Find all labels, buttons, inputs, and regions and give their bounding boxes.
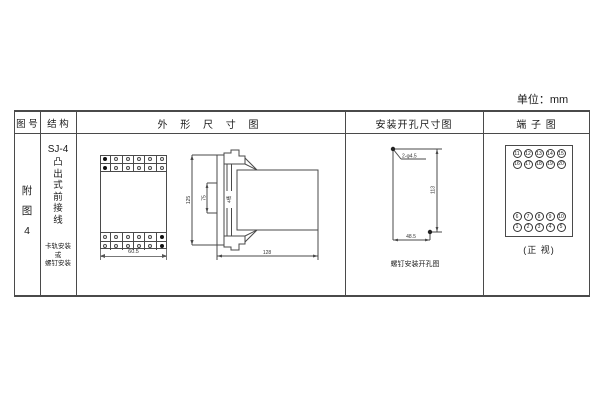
- terminal-4: 4: [546, 223, 555, 232]
- screw-icon: [114, 166, 118, 170]
- figure-number-line: 附: [14, 181, 40, 201]
- screw-cell: [145, 155, 156, 163]
- screw-row: [100, 233, 167, 242]
- table-divider-3: [345, 110, 346, 297]
- terminal-5: 5: [557, 223, 566, 232]
- screw-icon: [103, 244, 107, 248]
- screw-icon: [137, 244, 141, 248]
- terminal-caption: (正 视): [505, 243, 573, 256]
- terminal-14: 14: [546, 149, 555, 158]
- screw-cell: [157, 155, 167, 163]
- side-mid-dim: 75: [202, 195, 208, 201]
- table-border-top: [14, 110, 590, 112]
- terminal-18: 18: [535, 160, 544, 169]
- screw-icon: [103, 157, 107, 161]
- screw-icon: [137, 235, 141, 239]
- mounting-hole-drawing: 2-φ4.5 113 48.5: [378, 140, 452, 252]
- screw-icon: [126, 244, 130, 248]
- terminal-13: 13: [535, 149, 544, 158]
- terminal-15: 15: [557, 149, 566, 158]
- terminal-10: 10: [557, 212, 566, 221]
- screw-cell: [111, 233, 122, 241]
- screw-cell: [111, 164, 122, 172]
- screw-cell: [157, 164, 167, 172]
- screw-icon: [137, 157, 141, 161]
- screw-icon: [160, 244, 164, 248]
- screw-icon: [148, 235, 152, 239]
- screw-icon: [114, 244, 118, 248]
- header-structure: 结 构: [40, 116, 76, 130]
- table-divider-4: [483, 110, 484, 297]
- table-header-divider: [14, 133, 590, 134]
- terminal-row-1: 1112131415: [505, 149, 573, 158]
- screw-icon: [114, 235, 118, 239]
- screw-cell: [157, 233, 167, 241]
- mounting-hole-icon: [428, 230, 432, 234]
- screw-icon: [148, 244, 152, 248]
- screw-cell: [123, 233, 134, 241]
- mounting-hole-icon: [391, 147, 395, 151]
- terminal-8: 8: [535, 212, 544, 221]
- mounting-caption: 螺钉安装开孔图: [378, 259, 452, 269]
- terminal-row-4: 12345: [505, 223, 573, 232]
- table-divider-2: [76, 110, 77, 297]
- header-figure-no: 图 号: [14, 116, 40, 130]
- structure-mount-note: 卡轨安装 或 螺钉安装: [40, 243, 76, 269]
- figure-number-line: 4: [14, 221, 40, 241]
- drawing-sheet: 单位：mm 图 号 结 构 外 形 尺 寸 图 安装开孔尺寸图 端 子 图 附 …: [0, 0, 600, 400]
- screw-icon: [160, 157, 164, 161]
- screw-icon: [148, 157, 152, 161]
- figure-number: 附 图 4: [14, 181, 40, 241]
- table-border-right: [589, 110, 590, 297]
- screw-icon: [126, 157, 130, 161]
- screw-cell: [100, 164, 111, 172]
- structure-char: 出: [40, 169, 76, 181]
- screw-cell: [100, 155, 111, 163]
- side-view-drawing: 125 75 4槽 128: [186, 148, 326, 266]
- side-height-dim: 125: [186, 196, 192, 205]
- header-outline-dims: 外 形 尺 寸 图: [76, 116, 345, 131]
- screw-icon: [114, 157, 118, 161]
- mounting-v-dim: 113: [431, 186, 437, 194]
- mount-note-line: 卡轨安装: [40, 243, 76, 252]
- terminal-6: 6: [513, 212, 522, 221]
- screw-icon: [126, 166, 130, 170]
- screw-cell: [123, 164, 134, 172]
- screw-cell: [100, 233, 111, 241]
- screw-row: [100, 164, 167, 172]
- structure-char: 前: [40, 192, 76, 204]
- terminal-9: 9: [546, 212, 555, 221]
- terminal-2: 2: [524, 223, 533, 232]
- screw-icon: [103, 166, 107, 170]
- unit-label: 单位：mm: [505, 91, 580, 107]
- screw-cell: [145, 233, 156, 241]
- header-mounting-holes: 安装开孔尺寸图: [345, 116, 483, 131]
- terminal-19: 19: [546, 160, 555, 169]
- screw-icon: [148, 166, 152, 170]
- hole-size-label: 2-φ4.5: [402, 154, 417, 160]
- terminal-row-2: 1617181920: [505, 160, 573, 169]
- structure-char: 线: [40, 215, 76, 227]
- figure-number-line: 图: [14, 201, 40, 221]
- mounting-h-dim: 48.5: [406, 234, 416, 240]
- front-view-terminal-strip-top: [100, 155, 167, 172]
- terminal-17: 17: [524, 160, 533, 169]
- terminal-20: 20: [557, 160, 566, 169]
- structure-type: 凸 出 式 前 接 线: [40, 157, 76, 226]
- screw-cell: [134, 164, 145, 172]
- terminal-3: 3: [535, 223, 544, 232]
- screw-cell: [145, 164, 156, 172]
- screw-row: [100, 155, 167, 164]
- front-width-dim: 60.5: [100, 249, 167, 255]
- terminal-16: 16: [513, 160, 522, 169]
- dim-line-width: [100, 256, 167, 257]
- screw-cell: [134, 233, 145, 241]
- screw-icon: [160, 235, 164, 239]
- screw-icon: [126, 235, 130, 239]
- screw-cell: [111, 155, 122, 163]
- mount-note-line: 螺钉安装: [40, 260, 76, 269]
- header-terminals: 端 子 图: [483, 116, 590, 131]
- screw-cell: [123, 155, 134, 163]
- structure-char: 式: [40, 180, 76, 192]
- terminal-1: 1: [513, 223, 522, 232]
- screw-icon: [103, 235, 107, 239]
- structure-char: 接: [40, 203, 76, 215]
- screw-icon: [137, 166, 141, 170]
- side-slot-label: 4槽: [226, 196, 233, 204]
- front-view-terminal-strip-bottom: [100, 232, 167, 249]
- screw-cell: [134, 155, 145, 163]
- screw-icon: [160, 166, 164, 170]
- structure-model: SJ-4: [40, 144, 76, 155]
- terminal-row-3: 678910: [505, 212, 573, 221]
- terminal-12: 12: [524, 149, 533, 158]
- structure-char: 凸: [40, 157, 76, 169]
- side-depth-dim: 128: [263, 250, 272, 256]
- terminal-11: 11: [513, 149, 522, 158]
- mount-note-line: 或: [40, 252, 76, 261]
- terminal-7: 7: [524, 212, 533, 221]
- table-border-bottom: [14, 295, 590, 297]
